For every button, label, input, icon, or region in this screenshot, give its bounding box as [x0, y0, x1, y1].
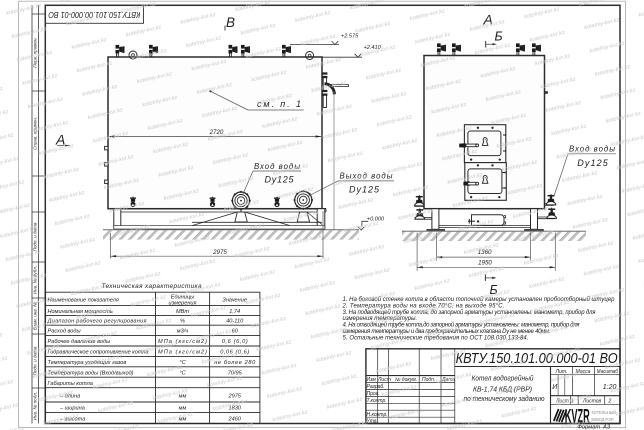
svg-text:мм: мм	[179, 416, 187, 422]
svg-text:Рабочее давление воды: Рабочее давление воды	[48, 339, 111, 345]
svg-text:0,6 (6,0): 0,6 (6,0)	[222, 339, 248, 345]
svg-text:Температура воды (Вход/выход): Температура воды (Вход/выход)	[48, 370, 134, 376]
svg-text:по техническому заданию: по техническому заданию	[464, 395, 546, 403]
svg-text:60: 60	[232, 329, 239, 335]
svg-text:°С: °С	[179, 370, 186, 376]
svg-text:Взам. инв. №: Взам. инв. №	[33, 302, 38, 330]
svg-text:– ширина: – ширина	[59, 406, 85, 412]
svg-text:+0.000: +0.000	[367, 217, 385, 223]
svg-text:Масса: Масса	[576, 369, 591, 375]
svg-text:Дата: Дата	[441, 377, 455, 383]
svg-text:Утв.: Утв.	[367, 419, 378, 425]
svg-text:не более 280: не более 280	[214, 360, 256, 366]
svg-text:Dy125: Dy125	[577, 158, 608, 168]
svg-text:Гидравлическое сопротивление к: Гидравлическое сопротивление котла	[48, 350, 149, 356]
svg-text:И: И	[552, 384, 558, 391]
svg-text:Т.контр.: Т.контр.	[367, 398, 387, 404]
svg-text:Формат: Формат	[577, 425, 600, 430]
svg-text:Пров.: Пров.	[367, 391, 380, 397]
svg-text:1: 1	[571, 398, 574, 404]
svg-text:Справ. примен.: Справ. примен.	[33, 117, 38, 150]
svg-text:1:20: 1:20	[603, 384, 617, 391]
svg-text:– длина: – длина	[59, 394, 80, 400]
svg-text:Dy125: Dy125	[349, 184, 380, 194]
svg-text:3. На подводящей трубе котла,: 3. На подводящей трубе котла, до запорно…	[343, 309, 597, 316]
svg-text:2975: 2975	[212, 249, 227, 256]
svg-text:Температура уходящих газов: Температура уходящих газов	[48, 360, 127, 366]
svg-text:КВТУ.150.101.00.000-01 ВО: КВТУ.150.101.00.000-01 ВО	[48, 10, 140, 19]
svg-text:0,06 (0,6): 0,06 (0,6)	[220, 350, 249, 356]
svg-text:измерения температуры.: измерения температуры.	[343, 316, 418, 322]
svg-text:№ докум.: № докум.	[395, 377, 417, 383]
svg-text:1. На боковой стенке котла в: 1. На боковой стенке котла в области топ…	[343, 296, 616, 303]
svg-text:Б: Б	[490, 283, 498, 297]
svg-text:КВ-1,74 КБД (РВР): КВ-1,74 КБД (РВР)	[473, 386, 532, 393]
svg-text:1360: 1360	[478, 249, 492, 256]
svg-text:А: А	[483, 12, 493, 28]
svg-text:м3/ч: м3/ч	[177, 329, 188, 335]
svg-text:КОТЕЛЬНЫЙ: КОТЕЛЬНЫЙ	[592, 408, 617, 416]
svg-text:2720: 2720	[209, 129, 224, 136]
svg-text:Вход воды: Вход воды	[569, 144, 615, 153]
svg-text:Наименование показателя: Наименование показателя	[48, 298, 119, 304]
svg-text:КВТУ.150.101.00.000-01 ВО: КВТУ.150.101.00.000-01 ВО	[456, 351, 618, 367]
svg-text:%: %	[180, 319, 185, 325]
svg-text:Подп. и дата: Подп. и дата	[33, 346, 38, 375]
svg-text:ЗАВОД РЭП: ЗАВОД РЭП	[592, 417, 614, 423]
svg-text:70/95: 70/95	[228, 370, 243, 376]
svg-text:Инв. № дубл.: Инв. № дубл.	[33, 266, 38, 294]
svg-text:2460: 2460	[227, 416, 241, 422]
svg-text:Н.контр.: Н.контр.	[367, 412, 388, 418]
svg-text:Подп.: Подп.	[422, 377, 435, 383]
svg-text:измерения температуры и два пр: измерения температуры и два предохраните…	[343, 329, 551, 335]
svg-text:мм: мм	[179, 394, 187, 400]
svg-text:Лист: Лист	[377, 377, 391, 383]
svg-text:А: А	[55, 131, 65, 147]
svg-text:Листов: Листов	[582, 398, 602, 404]
svg-text:МПа (кгс/см2): МПа (кгс/см2)	[158, 350, 207, 356]
svg-text:Инв. № подл.: Инв. № подл.	[33, 392, 38, 421]
svg-text:+2.410: +2.410	[364, 45, 382, 51]
svg-text:МВт: МВт	[176, 309, 189, 315]
svg-text:Разраб.: Разраб.	[367, 384, 385, 390]
svg-text:Dy125: Dy125	[265, 175, 295, 185]
svg-text:Номинальная мощность: Номинальная мощность	[48, 309, 113, 315]
svg-text:2: 2	[608, 398, 612, 404]
svg-text:40-110: 40-110	[226, 319, 244, 325]
svg-text:1,74: 1,74	[229, 309, 240, 315]
svg-text:Подп. и дата: Подп. и дата	[33, 222, 38, 251]
svg-text:°С: °С	[179, 360, 186, 366]
svg-text:Масштаб: Масштаб	[597, 369, 618, 375]
svg-text:2. Температура воды на входе: 2. Температура воды на входе 70°С, на вы…	[342, 303, 505, 309]
svg-text:В: В	[226, 15, 235, 30]
svg-text:5. Остальные технические треб: 5. Остальные технические требования по О…	[343, 335, 529, 341]
svg-text:Диапазон рабочего регулировани: Диапазон рабочего регулирования	[47, 319, 147, 325]
svg-text:1950: 1950	[478, 259, 492, 266]
svg-text:измерения: измерения	[169, 300, 197, 306]
svg-text:4. На отводящей трубе котла,д: 4. На отводящей трубе котла,до запорной …	[343, 322, 581, 329]
svg-text:Изм: Изм	[367, 377, 377, 383]
svg-text:мм: мм	[179, 406, 187, 412]
svg-text:Котел водогрейный: Котел водогрейный	[472, 375, 534, 383]
svg-text:1830: 1830	[228, 406, 241, 412]
svg-text:Габариты котла: Габариты котла	[48, 381, 93, 387]
svg-text:Расход воды: Расход воды	[48, 329, 81, 335]
svg-text:Выход воды: Выход воды	[340, 172, 393, 181]
svg-text:А3: А3	[602, 425, 611, 430]
svg-text:Техническая характеристика: Техническая характеристика	[102, 283, 202, 290]
svg-text:Лит.: Лит.	[555, 369, 568, 375]
svg-text:Значение: Значение	[222, 298, 247, 304]
svg-text:Перв. примен.: Перв. примен.	[33, 37, 38, 68]
svg-text:– высота: – высота	[59, 416, 85, 422]
svg-text:+2.575: +2.575	[341, 34, 359, 40]
svg-text:Б: Б	[495, 29, 503, 43]
svg-text:Вход воды: Вход воды	[254, 162, 300, 171]
svg-text:МПа (кгс/см2): МПа (кгс/см2)	[158, 339, 207, 345]
svg-text:Лист: Лист	[555, 398, 569, 404]
svg-text:2975: 2975	[227, 394, 241, 400]
